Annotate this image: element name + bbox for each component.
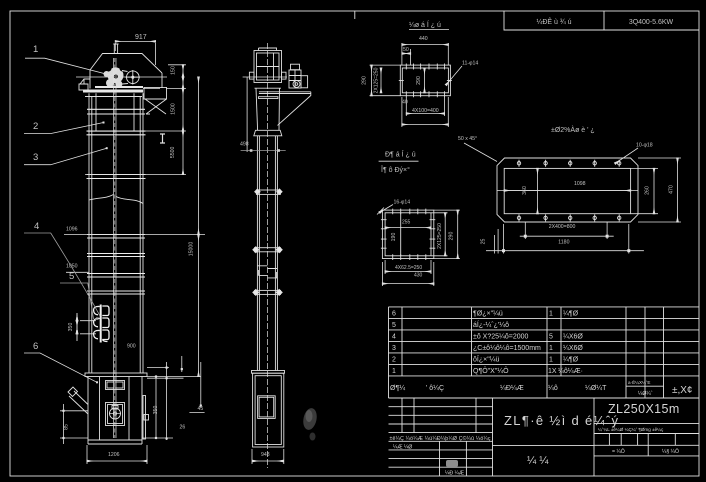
- svg-text:5: 5: [392, 322, 396, 329]
- svg-text:470: 470: [669, 185, 675, 194]
- svg-text:4: 4: [34, 221, 39, 232]
- svg-text:2X125=250: 2X125=250: [374, 67, 380, 93]
- svg-text:1500: 1500: [171, 103, 177, 115]
- svg-text:¼ ¼: ¼ ¼: [527, 455, 549, 467]
- svg-text:917: 917: [135, 34, 147, 41]
- svg-text:10-φ18: 10-φ18: [636, 143, 653, 149]
- svg-text:¼X6Ø: ¼X6Ø: [563, 334, 583, 341]
- svg-text:440: 440: [419, 36, 428, 42]
- svg-text:150: 150: [171, 66, 177, 75]
- svg-text:¼§ ¼Ô: ¼§ ¼Ô: [662, 448, 679, 455]
- svg-text:= ¼Ô: = ¼Ô: [612, 448, 625, 455]
- svg-text:40: 40: [402, 100, 408, 106]
- svg-text:Ð¶ á Í ¿ ú: Ð¶ á Í ¿ ú: [385, 150, 416, 159]
- svg-text:16-φ14: 16-φ14: [394, 200, 411, 206]
- svg-text:25: 25: [481, 239, 487, 245]
- svg-text:11-φ14: 11-φ14: [462, 61, 478, 67]
- svg-text:2: 2: [392, 357, 396, 364]
- svg-text:1: 1: [392, 368, 396, 375]
- svg-text:430: 430: [414, 273, 423, 279]
- svg-text:Q¶Ô"X"¼Ô: Q¶Ô"X"¼Ô: [473, 366, 509, 375]
- svg-text:¼¶Ø: ¼¶Ø: [563, 311, 579, 318]
- svg-text:4X100=400: 4X100=400: [412, 108, 439, 114]
- svg-text:¿C±ô¼ô¼ô=1500mm: ¿C±ô¼ô¼ô=1500mm: [473, 345, 541, 352]
- svg-text:¼Ð ¼Æ: ¼Ð ¼Æ: [445, 471, 464, 477]
- svg-text:¼ÐÊ ù ¾ ú: ¼ÐÊ ù ¾ ú: [536, 17, 571, 26]
- svg-text:26: 26: [180, 425, 186, 431]
- svg-text:360: 360: [522, 186, 528, 195]
- svg-text:290: 290: [416, 76, 422, 85]
- svg-text:¼X6Ø: ¼X6Ø: [563, 345, 583, 352]
- svg-text:350: 350: [153, 406, 159, 415]
- svg-text:1: 1: [549, 345, 553, 352]
- svg-text:50 x 45°: 50 x 45°: [458, 136, 477, 142]
- svg-text:350: 350: [68, 323, 74, 332]
- svg-text:1: 1: [549, 311, 553, 318]
- svg-text:290: 290: [362, 76, 368, 85]
- svg-text:2X400=800: 2X400=800: [549, 224, 576, 230]
- svg-text:943: 943: [261, 452, 270, 458]
- svg-text:498: 498: [240, 142, 249, 148]
- svg-text:4: 4: [392, 334, 396, 341]
- svg-text:¼Ð¼Æ: ¼Ð¼Æ: [500, 385, 524, 392]
- svg-text:1050: 1050: [66, 264, 78, 270]
- svg-text:900: 900: [127, 344, 136, 350]
- svg-text:2: 2: [33, 121, 38, 132]
- svg-text:a·Ê¼X¼ˆE: a·Ê¼X¼ˆE: [628, 378, 650, 385]
- svg-text:190: 190: [391, 233, 397, 242]
- svg-text:±ê¼Ç ¼ö¼Æ ¼ü¼Ð¼þ¼Ø Ç©¼û ¼ö¼ç: ±ê¼Ç ¼ö¼Æ ¼ü¼Ð¼þ¼Ø Ç©¼û ¼ö¼ç: [390, 435, 491, 442]
- svg-text:2X125=250: 2X125=250: [437, 223, 443, 249]
- svg-text:6: 6: [33, 341, 38, 352]
- svg-text:¼Ø¼ˆ: ¼Ø¼ˆ: [638, 391, 653, 397]
- svg-text:¼ø á Í ¿ ú: ¼ø á Í ¿ ú: [409, 20, 441, 29]
- svg-text:1180: 1180: [558, 240, 569, 246]
- svg-text:3: 3: [392, 345, 396, 352]
- svg-text:±ô X?25¼ô=2000: ±ô X?25¼ô=2000: [473, 334, 529, 341]
- svg-text:1096: 1096: [66, 227, 78, 233]
- svg-text:5500: 5500: [170, 147, 176, 159]
- svg-text:¼ô: ¼ô: [548, 385, 558, 392]
- svg-text:15000: 15000: [189, 242, 195, 257]
- svg-text:Ø¶¼: Ø¶¼: [390, 385, 405, 392]
- svg-text:45: 45: [198, 406, 204, 412]
- svg-text:Î¶ ô Ðý×°: Î¶ ô Ðý×°: [380, 165, 410, 174]
- svg-text:5: 5: [69, 271, 74, 282]
- svg-text:¼¶Ø: ¼¶Ø: [563, 357, 579, 364]
- svg-text:1: 1: [549, 357, 553, 364]
- svg-text:áÍ¿-¼ˆ¿'¼ô: áÍ¿-¼ˆ¿'¼ô: [473, 320, 509, 329]
- svg-text:1X: 1X: [548, 368, 557, 375]
- svg-text:1206: 1206: [108, 452, 120, 458]
- svg-text:4X62.5=250: 4X62.5=250: [395, 265, 422, 271]
- svg-text:3Q400-5.6KW: 3Q400-5.6KW: [629, 19, 674, 26]
- svg-text:ZL250X15m: ZL250X15m: [608, 402, 680, 416]
- svg-text:1: 1: [33, 44, 38, 55]
- svg-text:±Ø2%Àø è ' ¿: ±Ø2%Àø è ' ¿: [551, 125, 595, 134]
- svg-text:290: 290: [449, 232, 455, 241]
- svg-text:260: 260: [645, 186, 651, 195]
- svg-text:¼ô¼Æ·: ¼ô¼Æ·: [558, 368, 583, 375]
- svg-text:¶Ø¿×"¼ü: ¶Ø¿×"¼ü: [473, 311, 503, 318]
- svg-text:' ô¼Ç: ' ô¼Ç: [426, 385, 444, 392]
- svg-text:±,X¢: ±,X¢: [672, 385, 693, 396]
- svg-text:¼Ø¼T: ¼Ø¼T: [585, 385, 607, 392]
- svg-text:¼ˆ¼L ±ê¼Ø ¼Ç¼ˆ ¶Ømg ±ê¼ç: ¼ˆ¼L ±ê¼Ø ¼Ç¼ˆ ¶Ømg ±ê¼ç: [598, 427, 664, 432]
- svg-text:85: 85: [64, 424, 70, 430]
- svg-text:1098: 1098: [574, 181, 586, 187]
- svg-text:255: 255: [402, 220, 411, 226]
- svg-text:6: 6: [392, 311, 396, 318]
- svg-text:50: 50: [403, 47, 409, 53]
- svg-text:ôÍ¿×"¼ü: ôÍ¿×"¼ü: [473, 355, 500, 364]
- svg-text:ZL¶·ê ½ì d é¼ˆý: ZL¶·ê ½ì d é¼ˆý: [504, 413, 619, 428]
- svg-text:3: 3: [33, 152, 38, 163]
- svg-text:¼Æ ¼Ø: ¼Æ ¼Ø: [393, 444, 412, 450]
- svg-text:5: 5: [549, 334, 553, 341]
